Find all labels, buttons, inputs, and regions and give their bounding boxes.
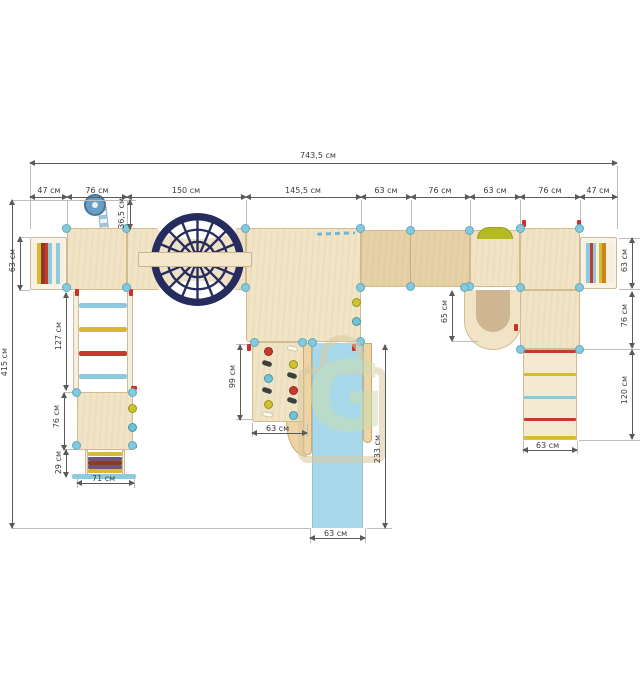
tunnel-opening — [476, 290, 510, 332]
extension-line — [411, 200, 412, 229]
dim-seg-1: 47 см — [33, 187, 65, 195]
connector-cap — [72, 388, 81, 397]
dim-seg-6: 76 см — [424, 187, 456, 195]
extension-line — [619, 289, 640, 290]
ladder-rung-red — [79, 351, 127, 356]
dim-line-seg-6 — [411, 197, 470, 198]
dim-slide-width: 63 см — [324, 530, 347, 538]
dim-line-ramp-length — [632, 350, 633, 439]
dim-steps: 29 см — [55, 451, 63, 474]
extension-line — [452, 341, 478, 342]
extension-line — [579, 440, 640, 441]
dim-tunnel: 65 см — [441, 300, 449, 323]
dim-total-width: 743,5 см — [300, 152, 336, 160]
ramp-bar-yellow — [524, 373, 576, 376]
extension-line — [367, 528, 392, 529]
dim-line-wall-height — [240, 345, 241, 420]
dim-periscope: 36,5 см — [118, 198, 126, 229]
dim-line-seg-3 — [127, 197, 246, 198]
climbing-hold-red — [264, 347, 273, 356]
connector-cap — [62, 224, 71, 233]
connector-cap — [516, 224, 525, 233]
ladder-rung-blue — [79, 374, 127, 379]
watermark-letter: G — [306, 349, 385, 445]
dim-ramp-width: 63 см — [536, 442, 559, 450]
connector-cap — [241, 283, 250, 292]
monkey-bars-left-rungs — [33, 243, 64, 284]
dim-base-left: 71 см — [92, 475, 115, 483]
platform-right-lower — [520, 290, 580, 349]
dim-line-platform-left — [64, 393, 65, 450]
dim-seg-9: 47 см — [582, 187, 614, 195]
post-cap-red — [514, 324, 518, 331]
connector-cap — [62, 283, 71, 292]
connector-cap — [575, 224, 584, 233]
climbing-hold-yellow — [264, 400, 273, 409]
dim-seg-8: 76 см — [534, 187, 566, 195]
dim-slide-length: 233 см — [374, 435, 382, 463]
dim-total-depth: 415 см — [1, 348, 9, 376]
connector-cap — [516, 345, 525, 354]
dim-line-climb-ladder — [66, 293, 67, 390]
dim-platform-right: 76 см — [621, 304, 629, 327]
platform-left — [67, 228, 127, 290]
playground-plan-drawing: 743,5 см 47 см 76 см 150 см 145,5 см 63 … — [0, 0, 643, 700]
dim-line-seg-7 — [470, 197, 520, 198]
connector-cap — [128, 441, 137, 450]
dim-line-seg-1 — [30, 197, 67, 198]
periscope-lens — [92, 202, 98, 208]
climbing-hold-yellow — [128, 404, 137, 413]
dim-line-ramp-width — [523, 450, 577, 451]
steps-rail — [122, 450, 125, 475]
connector-cap — [575, 345, 584, 354]
dim-line-base-left — [77, 483, 134, 484]
dim-seg-3: 150 см — [170, 187, 202, 195]
dim-platform-left: 76 см — [53, 405, 61, 428]
climbing-hold-yellow — [352, 298, 361, 307]
connector-cap — [516, 283, 525, 292]
dim-line-steps — [66, 450, 67, 477]
dim-line-seg-5 — [361, 197, 411, 198]
connector-cap — [356, 224, 365, 233]
dim-ramp-length: 120 см — [621, 376, 629, 404]
dim-line-periscope — [130, 200, 131, 229]
extension-line — [470, 200, 471, 229]
dim-line-ladder-right — [632, 238, 633, 288]
connector-cap — [122, 283, 131, 292]
connector-cap — [250, 338, 259, 347]
connector-cap — [406, 282, 415, 291]
dim-seg-4: 145,5 см — [280, 187, 326, 195]
connector-cap — [72, 441, 81, 450]
dim-line-slide-length — [385, 345, 386, 528]
connector-cap — [406, 226, 415, 235]
ramp-bar-red — [524, 418, 576, 421]
connector-cap — [241, 224, 250, 233]
dim-line-platform-right — [632, 292, 633, 348]
connector-cap — [128, 388, 137, 397]
ramp-bar-blue — [524, 396, 576, 399]
connector-cap — [356, 283, 365, 292]
ladder-rail — [127, 292, 133, 392]
dim-line-seg-8 — [520, 197, 580, 198]
monkey-bars-right — [580, 237, 617, 289]
extension-line — [12, 528, 310, 529]
dim-ladder-left: 63 см — [9, 249, 17, 272]
bridge-panel — [361, 230, 470, 287]
ramp-bar-red — [524, 350, 576, 353]
step-bar-yellow — [88, 469, 122, 473]
connector-cap — [575, 283, 584, 292]
platform-right — [520, 228, 580, 290]
dim-line-ladder-left — [20, 237, 21, 290]
dim-ladder-right: 63 см — [621, 249, 629, 272]
bridge-panel-divider — [410, 231, 411, 286]
ladder-rung-blue — [79, 303, 127, 308]
ramp-right — [523, 349, 577, 440]
dim-seg-5: 63 см — [370, 187, 402, 195]
dim-line-total-width — [30, 163, 617, 164]
dim-line-seg-9 — [580, 197, 617, 198]
step-bar-yellow — [88, 452, 122, 456]
tunnel-dome — [477, 227, 513, 239]
connector-cap — [465, 226, 474, 235]
post-cap-red — [75, 289, 79, 296]
climbing-hold-blue — [128, 423, 137, 432]
ladder-rung-yellow — [79, 327, 127, 332]
connector-cap — [460, 283, 469, 292]
dim-line-slide-width — [310, 538, 365, 539]
climbing-hold-blue — [264, 374, 273, 383]
dim-line-wall-width — [252, 433, 307, 434]
dim-seg-2: 76 см — [81, 187, 113, 195]
dim-climb-ladder: 127 см — [55, 322, 63, 350]
monkey-bars-left — [30, 237, 67, 290]
ramp-bar-yellow — [524, 436, 576, 439]
net-beam — [138, 252, 252, 267]
platform-central — [246, 228, 361, 342]
platform-lower-left — [77, 392, 133, 450]
dim-wall-height: 99 см — [229, 365, 237, 388]
climbing-hold-blue — [352, 317, 361, 326]
dim-line-tunnel — [452, 291, 453, 341]
dim-line-seg-4 — [246, 197, 361, 198]
monkey-bars-right-rungs — [583, 243, 614, 283]
dim-seg-7: 63 см — [479, 187, 511, 195]
dim-wall-width: 63 см — [266, 425, 289, 433]
